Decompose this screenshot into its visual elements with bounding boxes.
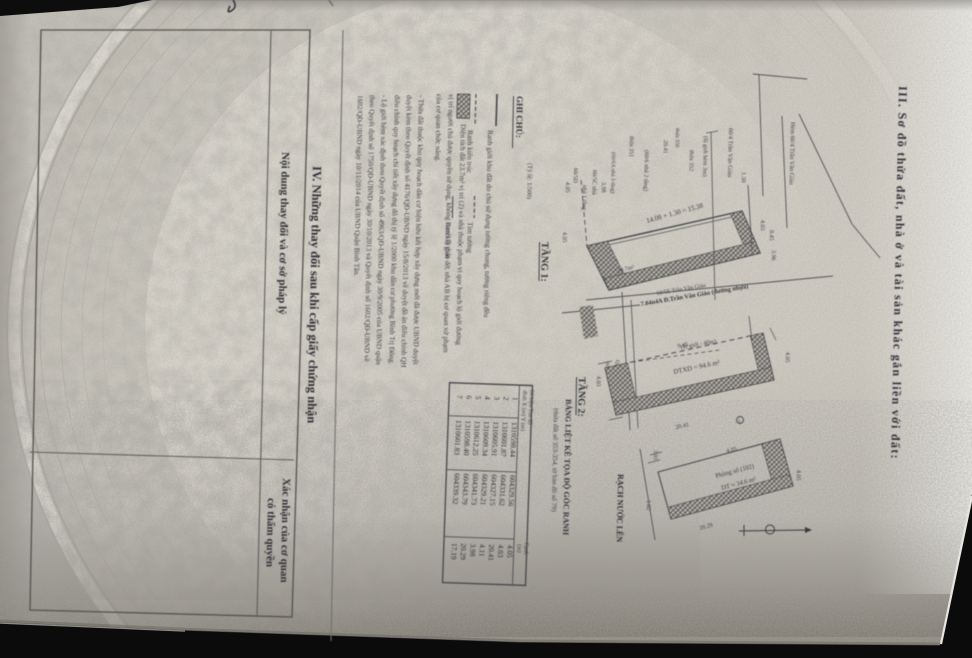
svg-text:TẦNG 2:: TẦNG 2: — [575, 377, 589, 417]
svg-text:60/5D: 60/5D — [572, 168, 578, 184]
svg-text:4.11: 4.11 — [477, 544, 487, 557]
svg-text:(Tỷ lệ: 1/500): (Tỷ lệ: 1/500) — [525, 163, 533, 199]
svg-text:4.05: 4.05 — [784, 352, 790, 363]
svg-text:(lộ giới hẻm 3m): (lộ giới hẻm 3m) — [701, 136, 709, 177]
svg-text:(m): (m) — [515, 544, 522, 553]
svg-text:60/4 Trần Văn Giàu: 60/4 Trần Văn Giàu — [726, 128, 734, 177]
svg-text:3.98: 3.98 — [468, 543, 478, 557]
svg-text:4.03: 4.03 — [595, 376, 601, 387]
svg-text:Tim tường: Tim tường — [465, 222, 475, 253]
svg-text:(60/6 nhà 2 tầng): (60/6 nhà 2 tầng) — [642, 150, 650, 191]
svg-text:60/5C nhà: 60/5C nhà — [590, 170, 597, 195]
svg-text:20.41: 20.41 — [662, 140, 668, 154]
svg-text:20.29: 20.29 — [458, 543, 468, 560]
svg-text:1.30: 1.30 — [740, 172, 746, 183]
svg-text:Cạnh: Cạnh — [522, 542, 529, 555]
svg-text:4.05: 4.05 — [795, 470, 801, 481]
svg-text:Xác nhận của cơ quan: Xác nhận của cơ quan — [278, 478, 292, 583]
svg-text:TẦNG 1:: TẦNG 1: — [538, 242, 552, 282]
svg-text:nhà 1 tầng: nhà 1 tầng — [580, 185, 588, 210]
svg-text:thửa 352: thửa 352 — [688, 150, 694, 171]
svg-text:GHI CHÚ:: GHI CHÚ: — [514, 96, 525, 138]
svg-text:17.19: 17.19 — [449, 543, 459, 560]
svg-text:3.96: 3.96 — [770, 250, 776, 261]
svg-text:4.03: 4.03 — [496, 544, 506, 558]
svg-text:4.05: 4.05 — [505, 545, 515, 559]
svg-text:604339.32: 604339.32 — [451, 473, 462, 505]
svg-text:RẠCH NƯỚC LÊN: RẠCH NƯỚC LÊN — [615, 474, 626, 543]
svg-text:Ranh lộ giới: Ranh lộ giới — [443, 222, 453, 258]
svg-text:thửa 350: thửa 350 — [674, 128, 680, 148]
svg-text:(60/6A nhà 3 tầng): (60/6A nhà 3 tầng) — [609, 152, 617, 194]
svg-text:thửa 351: thửa 351 — [628, 136, 634, 157]
svg-text:4.05: 4.05 — [564, 182, 570, 193]
svg-text:3.01: 3.01 — [652, 450, 658, 461]
svg-text:Hẻm 60/4 Trần Văn Giàu: Hẻm 60/4 Trần Văn Giàu — [788, 122, 796, 185]
svg-text:20.41: 20.41 — [486, 544, 496, 561]
svg-text:3.98: 3.98 — [600, 182, 606, 193]
svg-text:0.45: 0.45 — [768, 230, 774, 241]
svg-text:4.05: 4.05 — [561, 232, 567, 243]
svg-text:có thẩm quyền: có thẩm quyền — [264, 498, 277, 567]
svg-text:của cơ quan chức năng.: của cơ quan chức năng. — [434, 94, 443, 162]
svg-text:4.03: 4.03 — [759, 220, 765, 231]
